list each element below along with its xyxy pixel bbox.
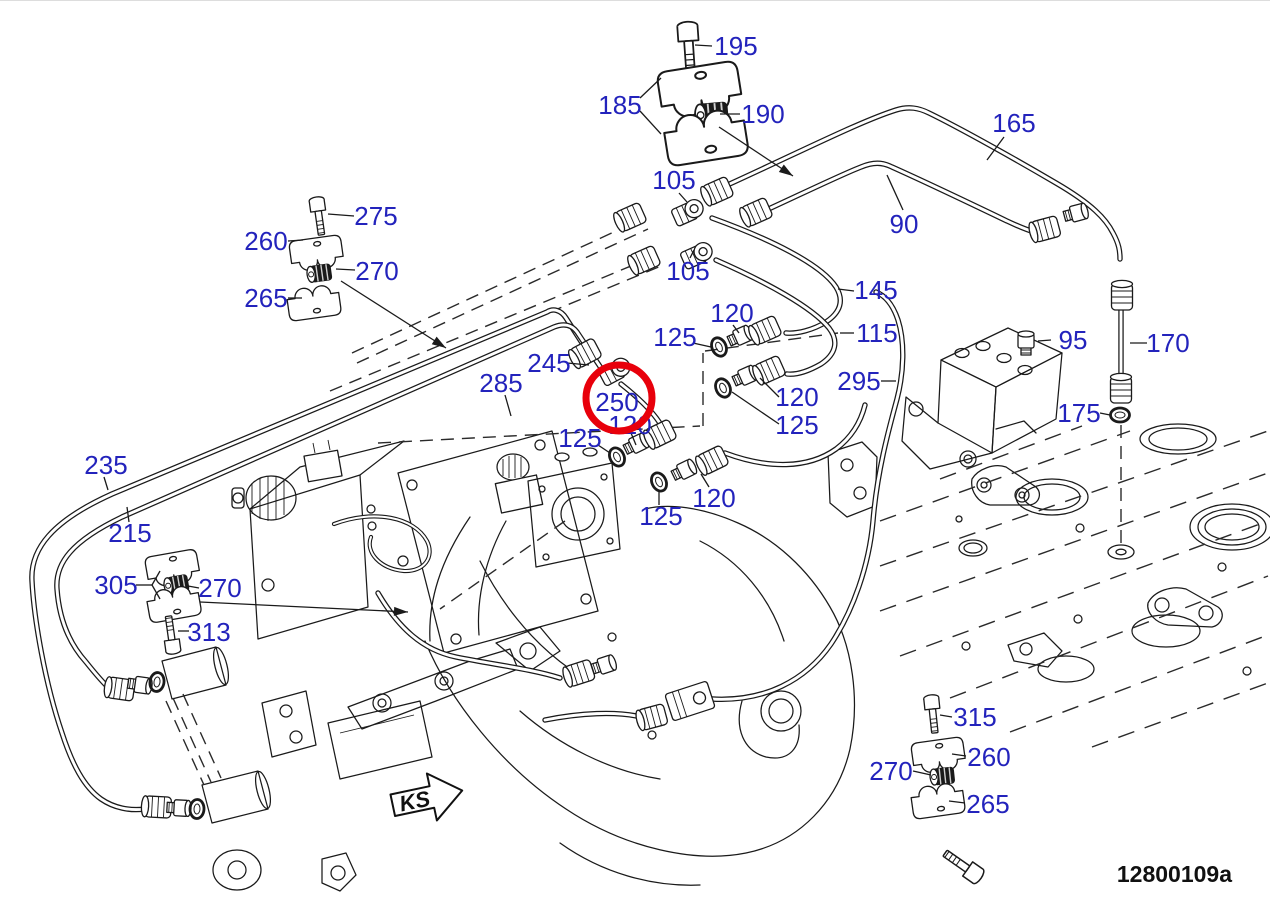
callout-270-31[interactable]: 270	[355, 256, 398, 286]
callout-265-32[interactable]: 265	[244, 283, 287, 313]
callout-170-22[interactable]: 170	[1146, 328, 1189, 358]
callout-215-25[interactable]: 215	[108, 518, 151, 548]
callout-125-10[interactable]: 125	[653, 322, 696, 352]
callout-275-29[interactable]: 275	[354, 201, 397, 231]
callout-235-24[interactable]: 235	[84, 450, 127, 480]
callout-245-11[interactable]: 245	[527, 348, 570, 378]
callout-305-26[interactable]: 305	[94, 570, 137, 600]
callout-315-33[interactable]: 315	[953, 702, 996, 732]
parts-diagram-page: KS 1951851901659010510514511512012524528…	[0, 0, 1270, 899]
callout-195-0[interactable]: 195	[714, 31, 757, 61]
callout-115-8[interactable]: 115	[856, 318, 897, 348]
callout-120-18[interactable]: 120	[692, 483, 735, 513]
callout-145-7[interactable]: 145	[854, 275, 897, 305]
callout-165-3[interactable]: 165	[992, 108, 1035, 138]
callout-120-16[interactable]: 120	[775, 382, 818, 412]
callout-95-21[interactable]: 95	[1059, 325, 1088, 355]
drawing-number: 12800109a	[1117, 861, 1232, 887]
callout-285-12[interactable]: 285	[479, 368, 522, 398]
callout-270-35[interactable]: 270	[869, 756, 912, 786]
callout-125-15[interactable]: 125	[558, 423, 601, 453]
hose-nut	[1111, 373, 1132, 403]
connector-95	[1018, 331, 1034, 355]
callout-295-20[interactable]: 295	[837, 366, 880, 396]
callout-175-23[interactable]: 175	[1057, 398, 1100, 428]
callout-120-9[interactable]: 120	[710, 298, 753, 328]
callout-125-17[interactable]: 125	[775, 410, 818, 440]
callout-260-30[interactable]: 260	[244, 226, 287, 256]
callout-260-34[interactable]: 260	[967, 742, 1010, 772]
callout-125-19[interactable]: 125	[639, 501, 682, 531]
callout-185-1[interactable]: 185	[598, 90, 641, 120]
bushing-270	[929, 767, 955, 785]
callout-313-28[interactable]: 313	[187, 617, 230, 647]
callout-90-4[interactable]: 90	[890, 209, 919, 239]
callout-105-5[interactable]: 105	[652, 165, 695, 195]
exploded-parts-diagram: KS 1951851901659010510514511512012524528…	[0, 1, 1270, 899]
callout-105-6[interactable]: 105	[666, 256, 709, 286]
bushing-270	[306, 264, 332, 283]
hose-nut	[1112, 280, 1133, 310]
callout-265-36[interactable]: 265	[966, 789, 1009, 819]
callout-190-2[interactable]: 190	[741, 99, 784, 129]
callout-270-27[interactable]: 270	[198, 573, 241, 603]
washer	[1108, 545, 1134, 559]
